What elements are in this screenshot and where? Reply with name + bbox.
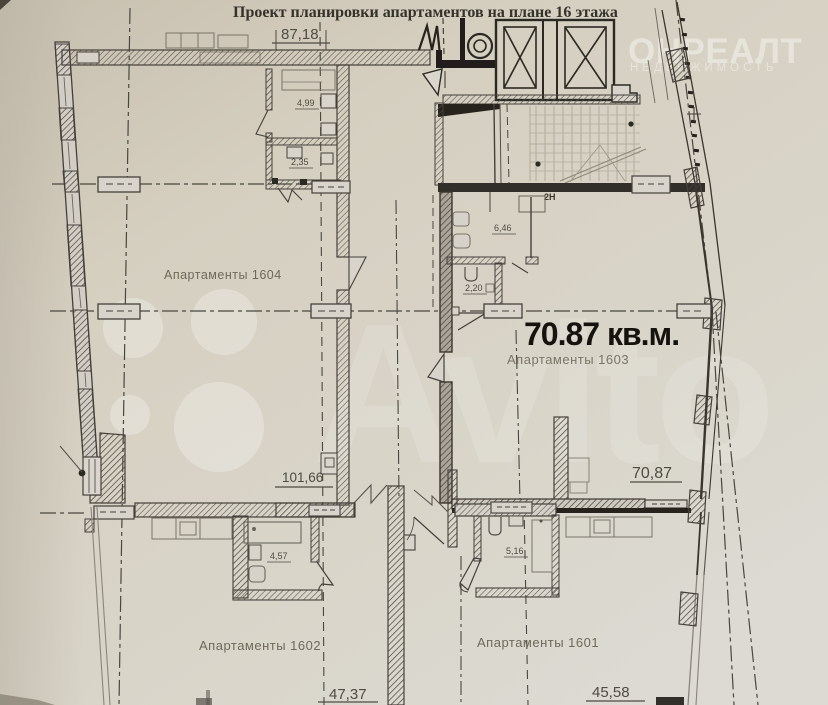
- svg-text:Апартаменты 1603: Апартаменты 1603: [507, 352, 629, 367]
- svg-text:6,46: 6,46: [494, 223, 512, 233]
- svg-text:Апартаменты 1602: Апартаменты 1602: [199, 638, 321, 653]
- svg-text:Апартаменты 1601: Апартаменты 1601: [477, 635, 599, 650]
- svg-text:45,58: 45,58: [592, 684, 630, 701]
- svg-text:Проект планировки апартаментов: Проект планировки апартаментов на плане …: [233, 4, 618, 21]
- svg-text:2,35: 2,35: [291, 157, 309, 167]
- svg-text:87,18: 87,18: [281, 26, 319, 43]
- svg-text:4,99: 4,99: [297, 98, 315, 108]
- svg-text:101,66: 101,66: [282, 470, 323, 485]
- svg-text:70,87: 70,87: [632, 465, 672, 482]
- svg-text:5,16: 5,16: [506, 546, 524, 556]
- svg-text:70.87 кв.м.: 70.87 кв.м.: [524, 316, 679, 352]
- svg-text:4,57: 4,57: [270, 551, 288, 561]
- svg-text:НЕДВИЖИМОСТЬ: НЕДВИЖИМОСТЬ: [630, 62, 778, 74]
- svg-text:Апартаменты 1604: Апартаменты 1604: [164, 268, 282, 282]
- svg-text:47,37: 47,37: [329, 686, 367, 703]
- svg-text:2,20: 2,20: [465, 283, 483, 293]
- svg-text:2Н: 2Н: [544, 192, 556, 202]
